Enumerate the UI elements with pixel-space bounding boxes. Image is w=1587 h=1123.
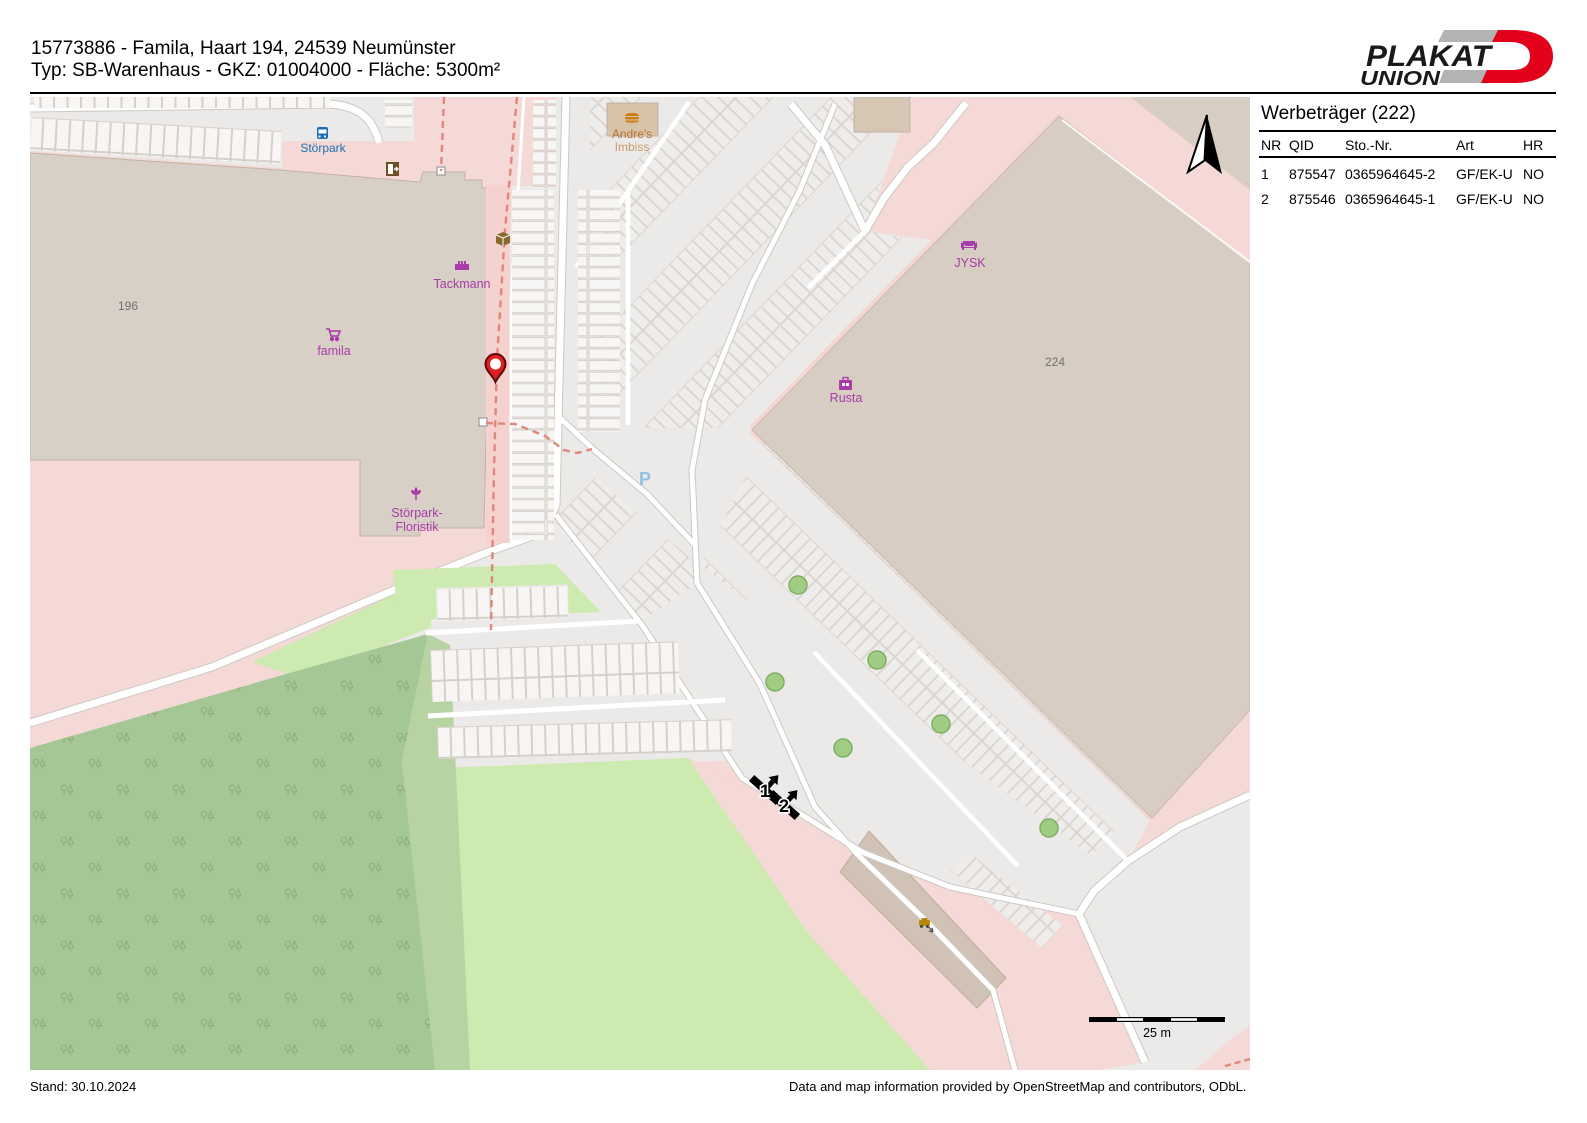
svg-text:1: 1: [760, 781, 770, 801]
svg-text:Störpark-: Störpark-: [391, 506, 442, 520]
svg-text:Andre's: Andre's: [612, 127, 652, 141]
svg-text:UNION: UNION: [1360, 68, 1441, 90]
svg-text:2: 2: [779, 796, 789, 816]
svg-text:224: 224: [1045, 355, 1065, 369]
svg-text:P: P: [639, 469, 651, 489]
svg-text:Tackmann: Tackmann: [434, 277, 491, 291]
svg-text:Floristik: Floristik: [395, 520, 439, 534]
svg-text:famila: famila: [317, 344, 350, 358]
svg-text:196: 196: [118, 299, 138, 313]
svg-text:Imbiss: Imbiss: [615, 140, 650, 154]
svg-text:Rusta: Rusta: [830, 391, 863, 405]
svg-text:25 m: 25 m: [1143, 1026, 1171, 1040]
svg-text:Störpark: Störpark: [300, 141, 346, 155]
svg-text:JYSK: JYSK: [954, 256, 986, 270]
